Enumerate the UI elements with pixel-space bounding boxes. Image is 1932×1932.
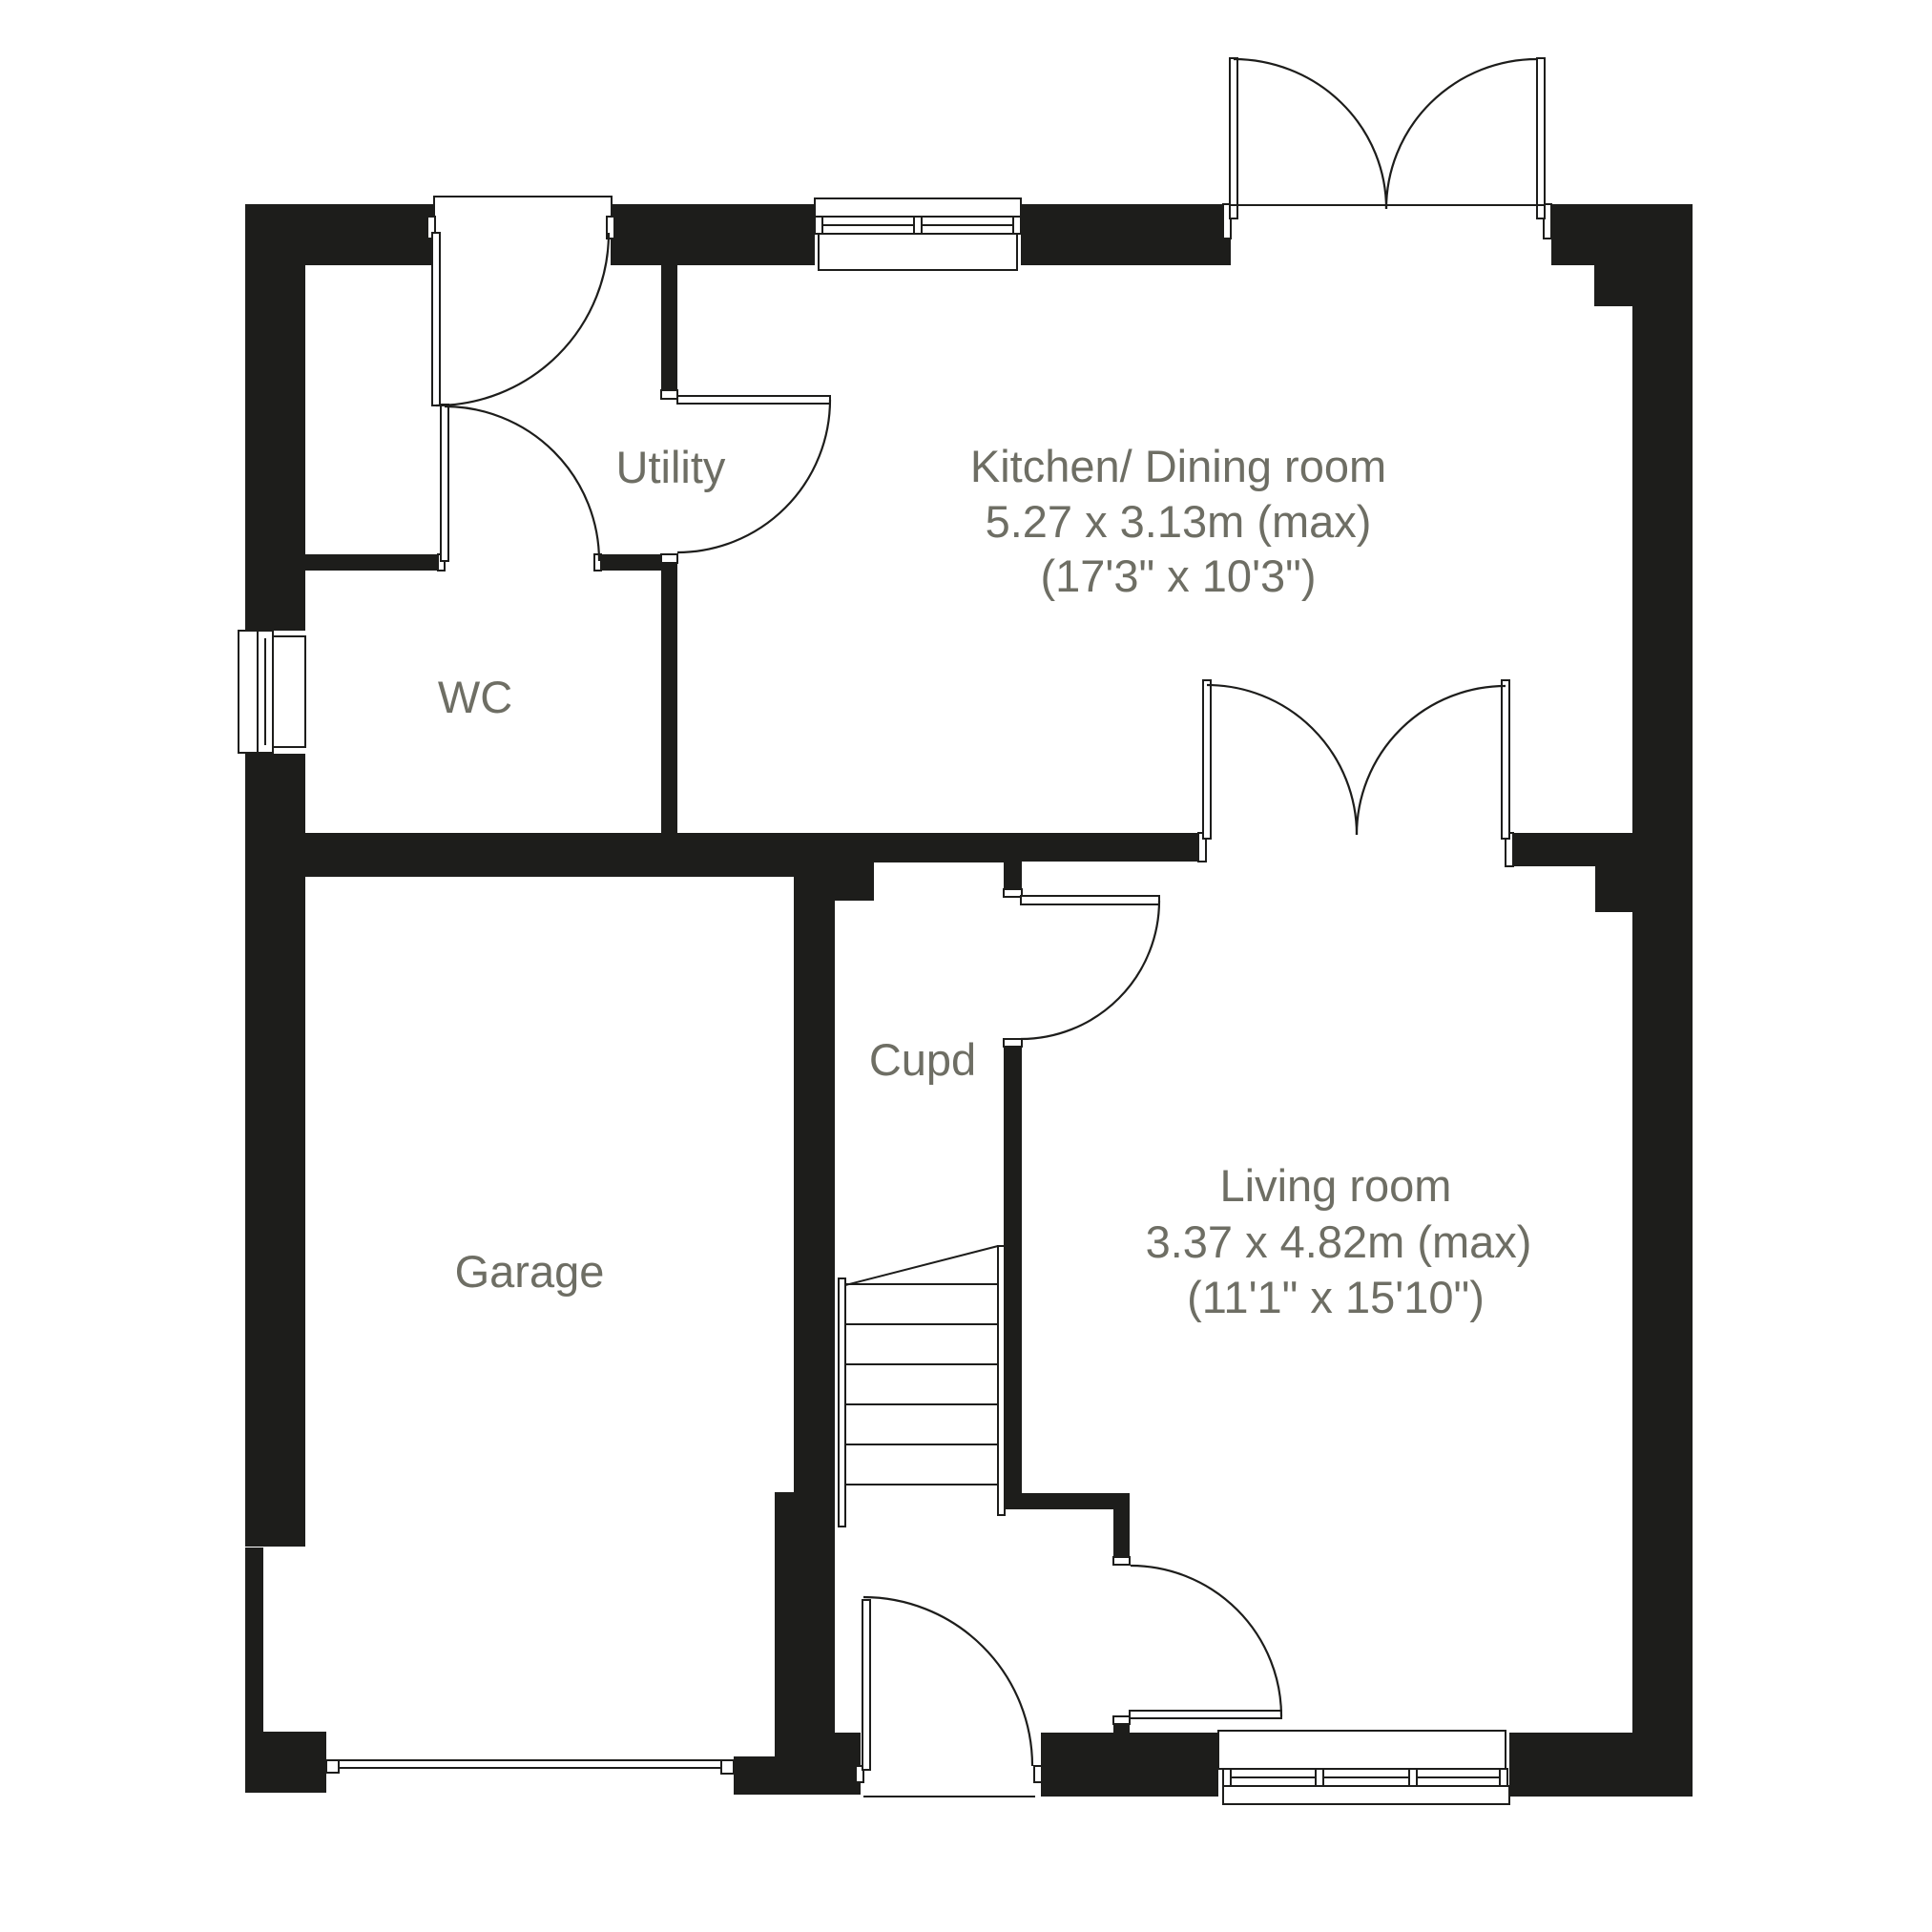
svg-text:Garage: Garage [455, 1246, 605, 1297]
svg-text:WC: WC [438, 672, 512, 722]
svg-text:(11'1" x 15'10"): (11'1" x 15'10") [1187, 1272, 1485, 1322]
svg-text:Living room: Living room [1220, 1160, 1452, 1211]
svg-text:Cupd: Cupd [869, 1034, 976, 1085]
svg-text:5.27 x 3.13m (max): 5.27 x 3.13m (max) [986, 496, 1372, 547]
svg-text:(17'3" x 10'3"): (17'3" x 10'3") [1040, 551, 1316, 601]
svg-text:3.37 x 4.82m (max): 3.37 x 4.82m (max) [1146, 1216, 1532, 1267]
svg-text:Kitchen/ Dining room: Kitchen/ Dining room [970, 441, 1386, 491]
svg-text:Utility: Utility [616, 442, 726, 492]
